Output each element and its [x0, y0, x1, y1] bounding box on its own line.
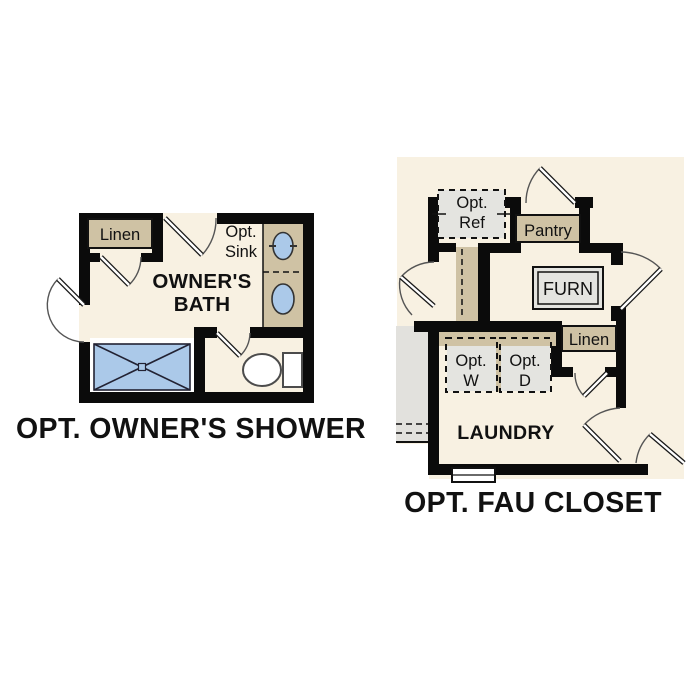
right-plan-title: OPT. FAU CLOSET	[404, 487, 662, 519]
toilet-bowl-icon	[243, 354, 281, 386]
linen-label: Linen	[569, 331, 609, 349]
wall-pantry-stub-right	[575, 197, 593, 208]
fau-closet-plan: Pantry Opt. Ref FURN Linen Opt. W Opt. D	[396, 157, 684, 519]
floorplan-page: Linen	[0, 0, 687, 687]
chase	[456, 247, 478, 321]
opt-sink-label-line1: Opt.	[225, 223, 256, 241]
opt-dryer-label-line1: Opt.	[509, 352, 540, 370]
opt-ref-label-line1: Opt.	[456, 194, 487, 212]
room-label: LAUNDRY	[457, 422, 554, 444]
wall-linen-stub-right	[605, 367, 626, 377]
owners-shower-plan: Linen	[16, 213, 366, 445]
opt-washer-label-line1: Opt.	[455, 352, 486, 370]
wall-linen-stub-left	[551, 367, 573, 377]
wall-below-ref	[428, 243, 456, 252]
door-opening-left	[79, 305, 90, 342]
opt-dryer-label-line2: D	[519, 372, 531, 390]
wall-furn-top-left	[490, 243, 511, 253]
door-entry-left	[47, 279, 84, 342]
linen-closet-wall-stub-right	[141, 253, 163, 262]
wall-right-door-stub-top	[611, 243, 623, 265]
room-label-line1: OWNER'S	[152, 270, 251, 293]
opt-washer-label-line2: W	[463, 372, 479, 390]
wall-right	[303, 213, 314, 403]
wall-under-vanity	[250, 327, 314, 338]
wall-right-outer	[616, 312, 626, 408]
linen-label: Linen	[100, 226, 140, 244]
toilet-tank-icon	[283, 353, 302, 387]
left-plan-title: OPT. OWNER'S SHOWER	[16, 413, 366, 445]
furnace-label: FURN	[543, 279, 593, 299]
opt-sink-label-line2: Sink	[225, 243, 258, 261]
wall-furn-left	[478, 243, 490, 321]
floorplan-canvas: Linen	[0, 0, 687, 687]
exterior-patch	[396, 444, 429, 480]
sink-icon	[272, 284, 294, 314]
opt-ref-label-line2: Ref	[459, 214, 485, 232]
room-label-line2: BATH	[174, 293, 231, 316]
shower-drain-icon	[139, 364, 146, 371]
toilet-room-wall-vertical	[194, 327, 205, 403]
pantry-label: Pantry	[524, 222, 572, 240]
wall-laundry-left	[428, 321, 439, 475]
linen-closet-wall-stub-left	[79, 253, 100, 262]
